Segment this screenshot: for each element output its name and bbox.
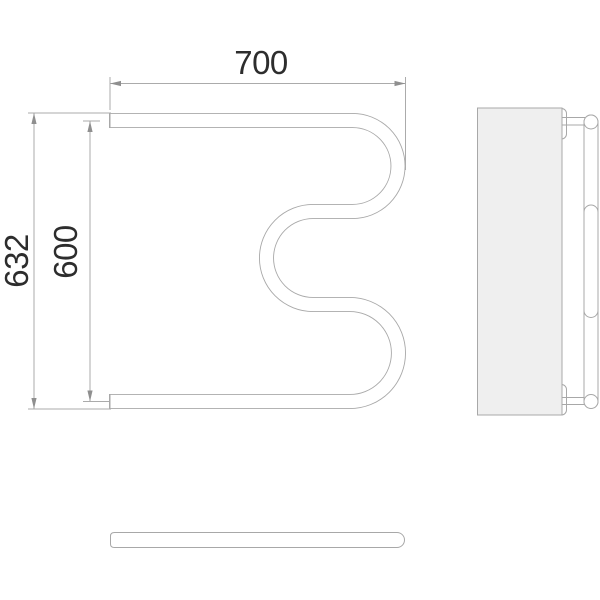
arrow-right-icon [395, 81, 406, 86]
dimension-label-overall-height: 632 [0, 234, 35, 288]
arrow-down-icon [87, 391, 92, 402]
tube-end-cap-top [584, 115, 598, 129]
dimension-center-height: 600 [47, 121, 109, 402]
side-tube-bend-overlap [584, 205, 598, 318]
technical-drawing: 700 632 600 [0, 0, 600, 600]
arrow-down-icon [31, 398, 36, 409]
drawing-canvas: 700 632 600 [0, 0, 600, 600]
dimension-top-width: 700 [110, 44, 406, 170]
arrow-up-icon [31, 113, 36, 124]
wall-plate [478, 108, 563, 415]
tube-inner-fill [111, 121, 399, 402]
side-view [478, 108, 599, 415]
arrow-up-icon [87, 121, 92, 132]
tube-outline [109, 121, 398, 402]
dimension-label-center-height: 600 [47, 225, 84, 279]
dimension-label-top-width: 700 [234, 44, 288, 81]
bottom-view [111, 533, 405, 548]
arrow-left-icon [110, 81, 121, 86]
front-view [109, 121, 398, 402]
bottom-view-tube [111, 533, 405, 548]
tube-end-cap-bottom [584, 395, 598, 409]
